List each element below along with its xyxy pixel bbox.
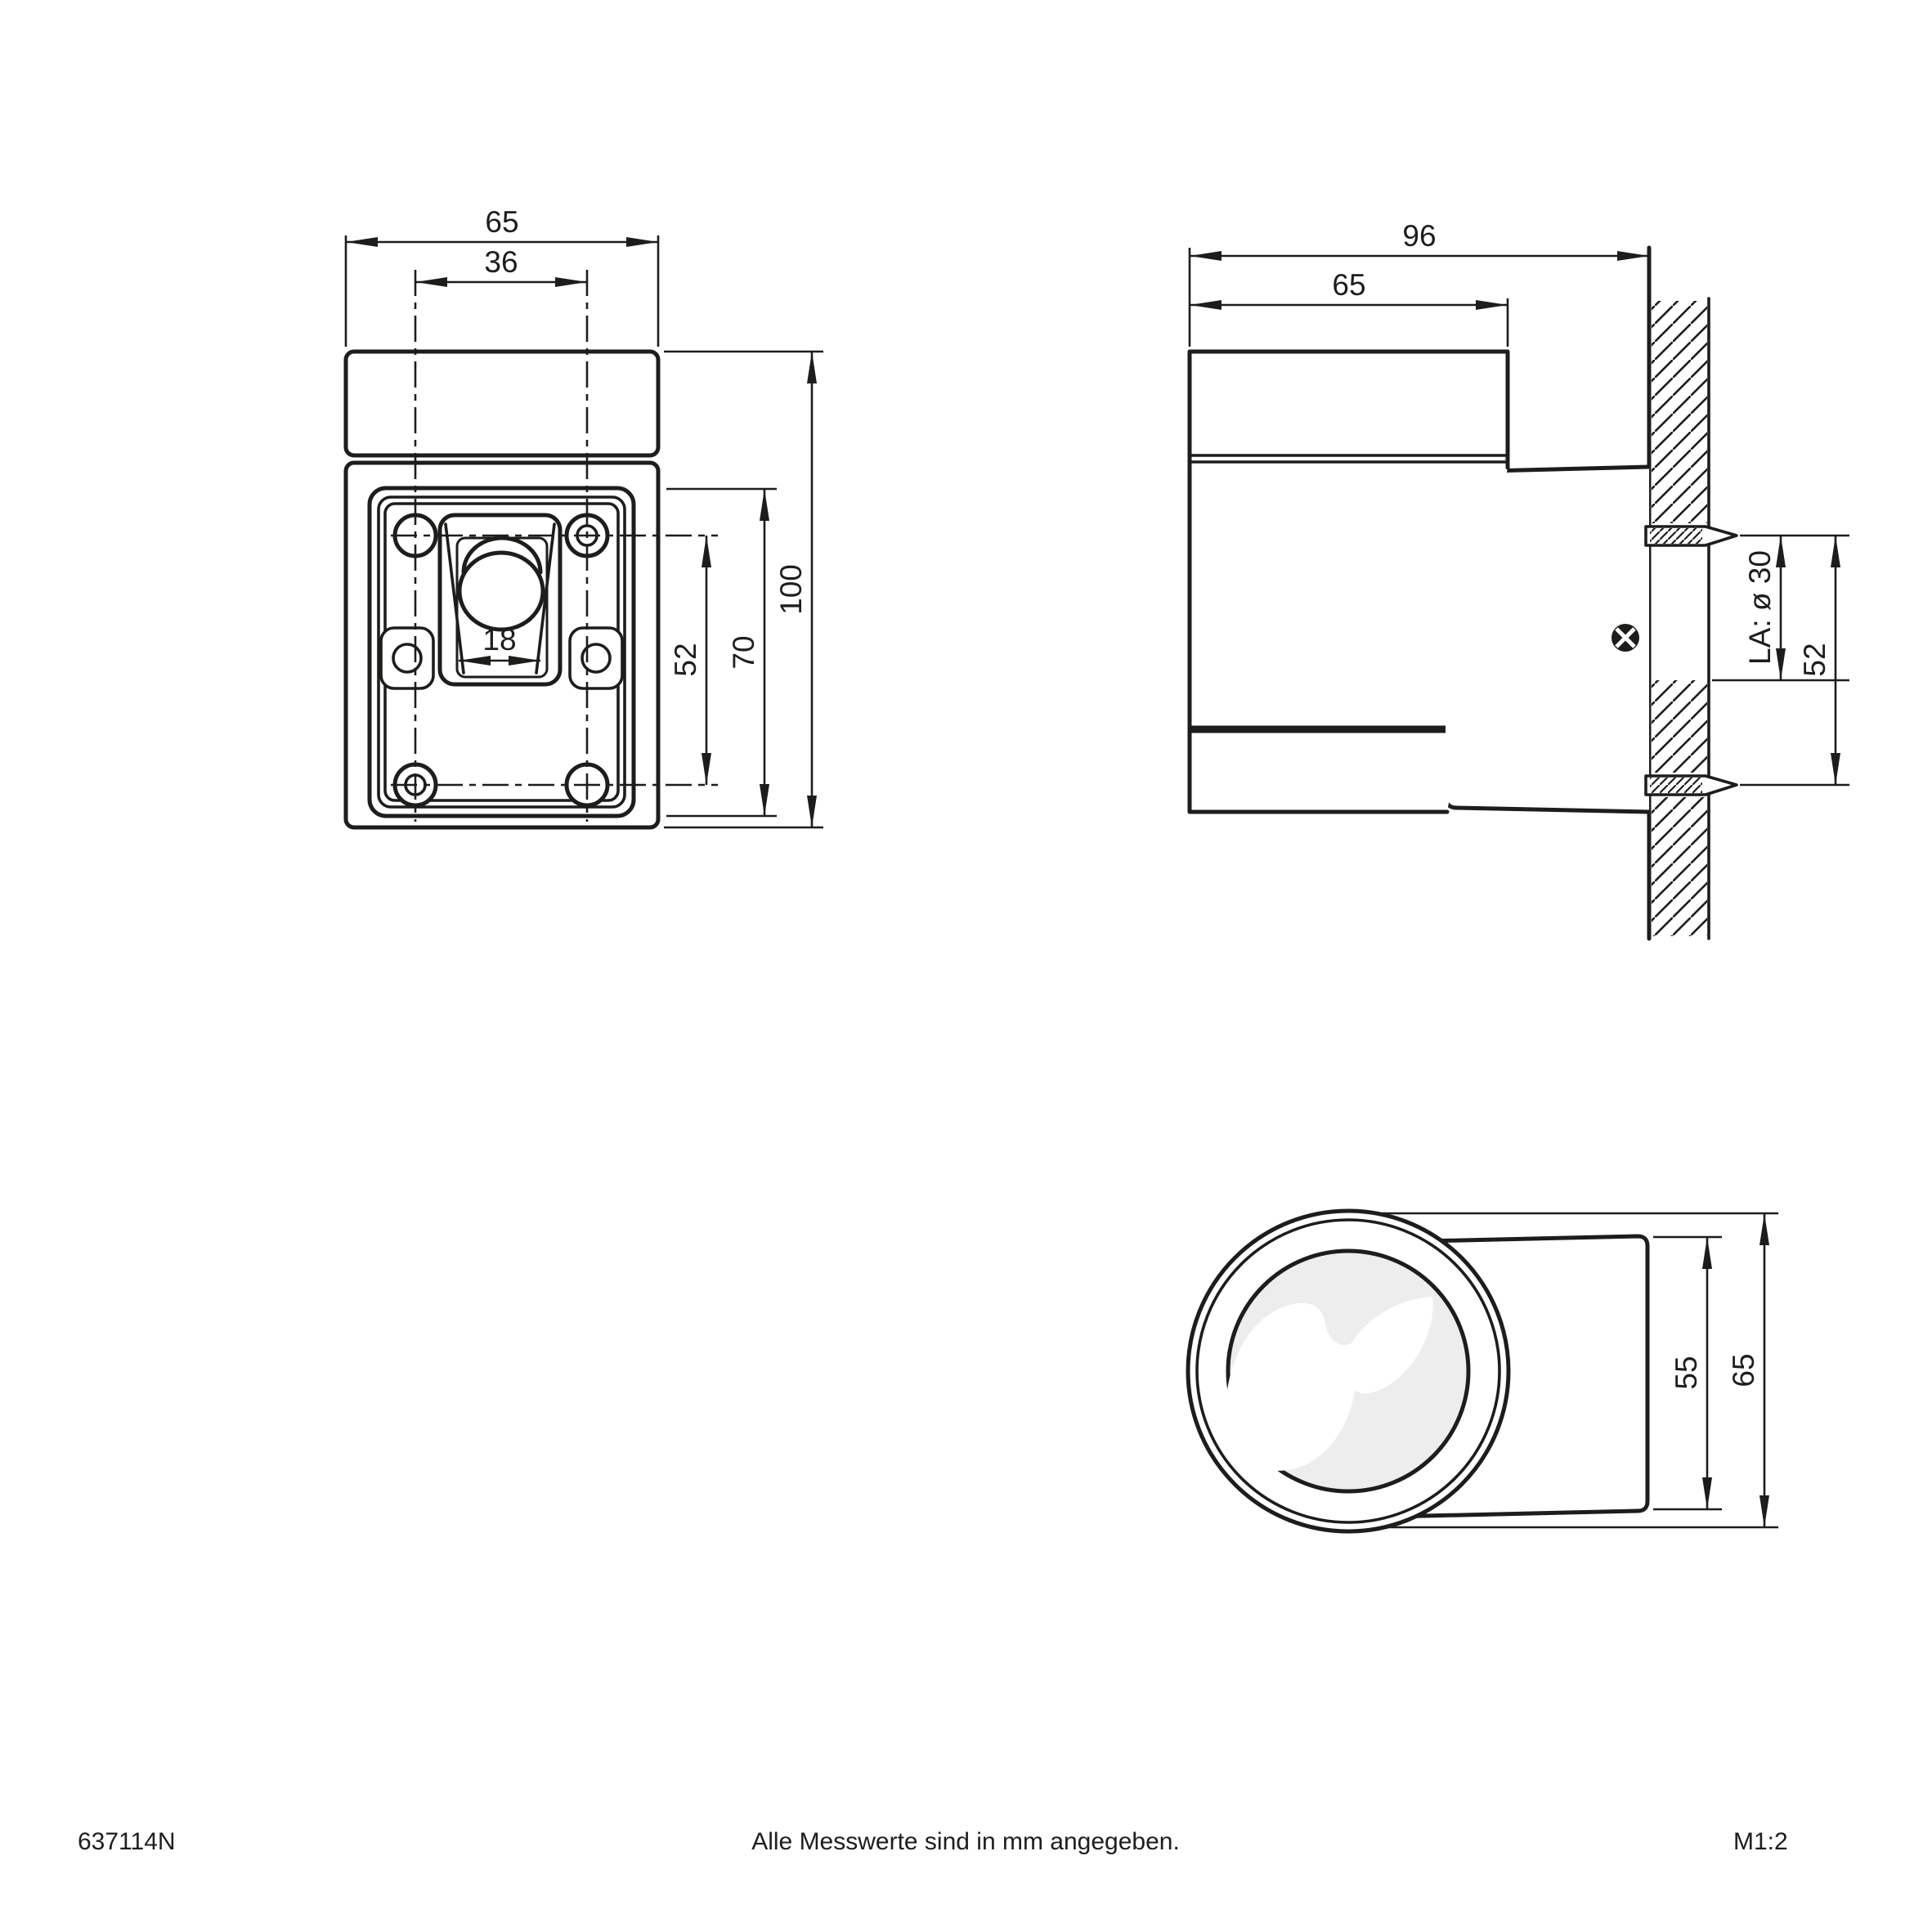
left-clip-notch — [381, 628, 433, 688]
side-view: 96 65 LA: ø 30 52 — [1190, 219, 1849, 939]
dim-label-bottom-diameter: 65 — [1727, 1353, 1760, 1387]
dim-label-side-depth: 96 — [1402, 219, 1436, 253]
dim-bottom-back-diameter: 55 — [1653, 1237, 1722, 1509]
dim-label-front-hole-spacing-h: 36 — [484, 245, 518, 279]
units-note: Alle Messwerte sind in mm angegeben. — [751, 1828, 1180, 1855]
wall-hatch-top — [1652, 301, 1707, 523]
dim-front-hole-spacing-v: 52 — [669, 536, 706, 785]
drawing-page: 65 36 18 52 70 100 — [0, 0, 1932, 1932]
dim-side-body-depth: 65 — [1190, 268, 1508, 347]
dim-label-front-plate-height: 70 — [727, 635, 760, 669]
wall — [1649, 248, 1709, 939]
wall-hatch-bottom — [1652, 797, 1707, 936]
technical-dimension-drawing: 65 36 18 52 70 100 — [0, 0, 1932, 1932]
dim-label-front-total-height: 100 — [774, 564, 808, 615]
dim-label-side-hole-spacing-v: 52 — [1798, 643, 1831, 676]
scale-label: M1:2 — [1733, 1828, 1788, 1855]
wall-hatch-mid — [1652, 680, 1707, 773]
plate-screw-head-icon — [1611, 624, 1639, 652]
dim-label-front-width: 65 — [485, 205, 518, 239]
wall-screw-bottom-icon — [1646, 776, 1737, 795]
front-body-top-cap — [346, 352, 658, 455]
footer: 637114N Alle Messwerte sind in mm angege… — [78, 1828, 1788, 1855]
dim-front-total-height: 100 — [664, 352, 823, 827]
front-view: 65 36 18 52 70 100 — [346, 205, 823, 827]
right-clip-notch — [570, 628, 622, 688]
dim-front-hole-spacing-h: 36 — [415, 245, 587, 282]
dim-label-front-lamp-opening: 18 — [482, 623, 516, 657]
dim-label-side-body-depth: 65 — [1332, 268, 1365, 302]
article-number: 637114N — [78, 1828, 176, 1855]
bottom-view: 55 65 — [1188, 1211, 1778, 1531]
dim-label-front-hole-spacing-v: 52 — [669, 643, 702, 676]
dim-label-side-wall-hole: LA: ø 30 — [1743, 550, 1777, 665]
lamp-socket-hole — [459, 553, 543, 630]
lamp-recess — [440, 515, 560, 684]
dim-side-depth: 96 — [1190, 219, 1649, 347]
wall-screw-top-icon — [1646, 527, 1737, 545]
dim-label-bottom-back-diameter: 55 — [1670, 1356, 1703, 1389]
